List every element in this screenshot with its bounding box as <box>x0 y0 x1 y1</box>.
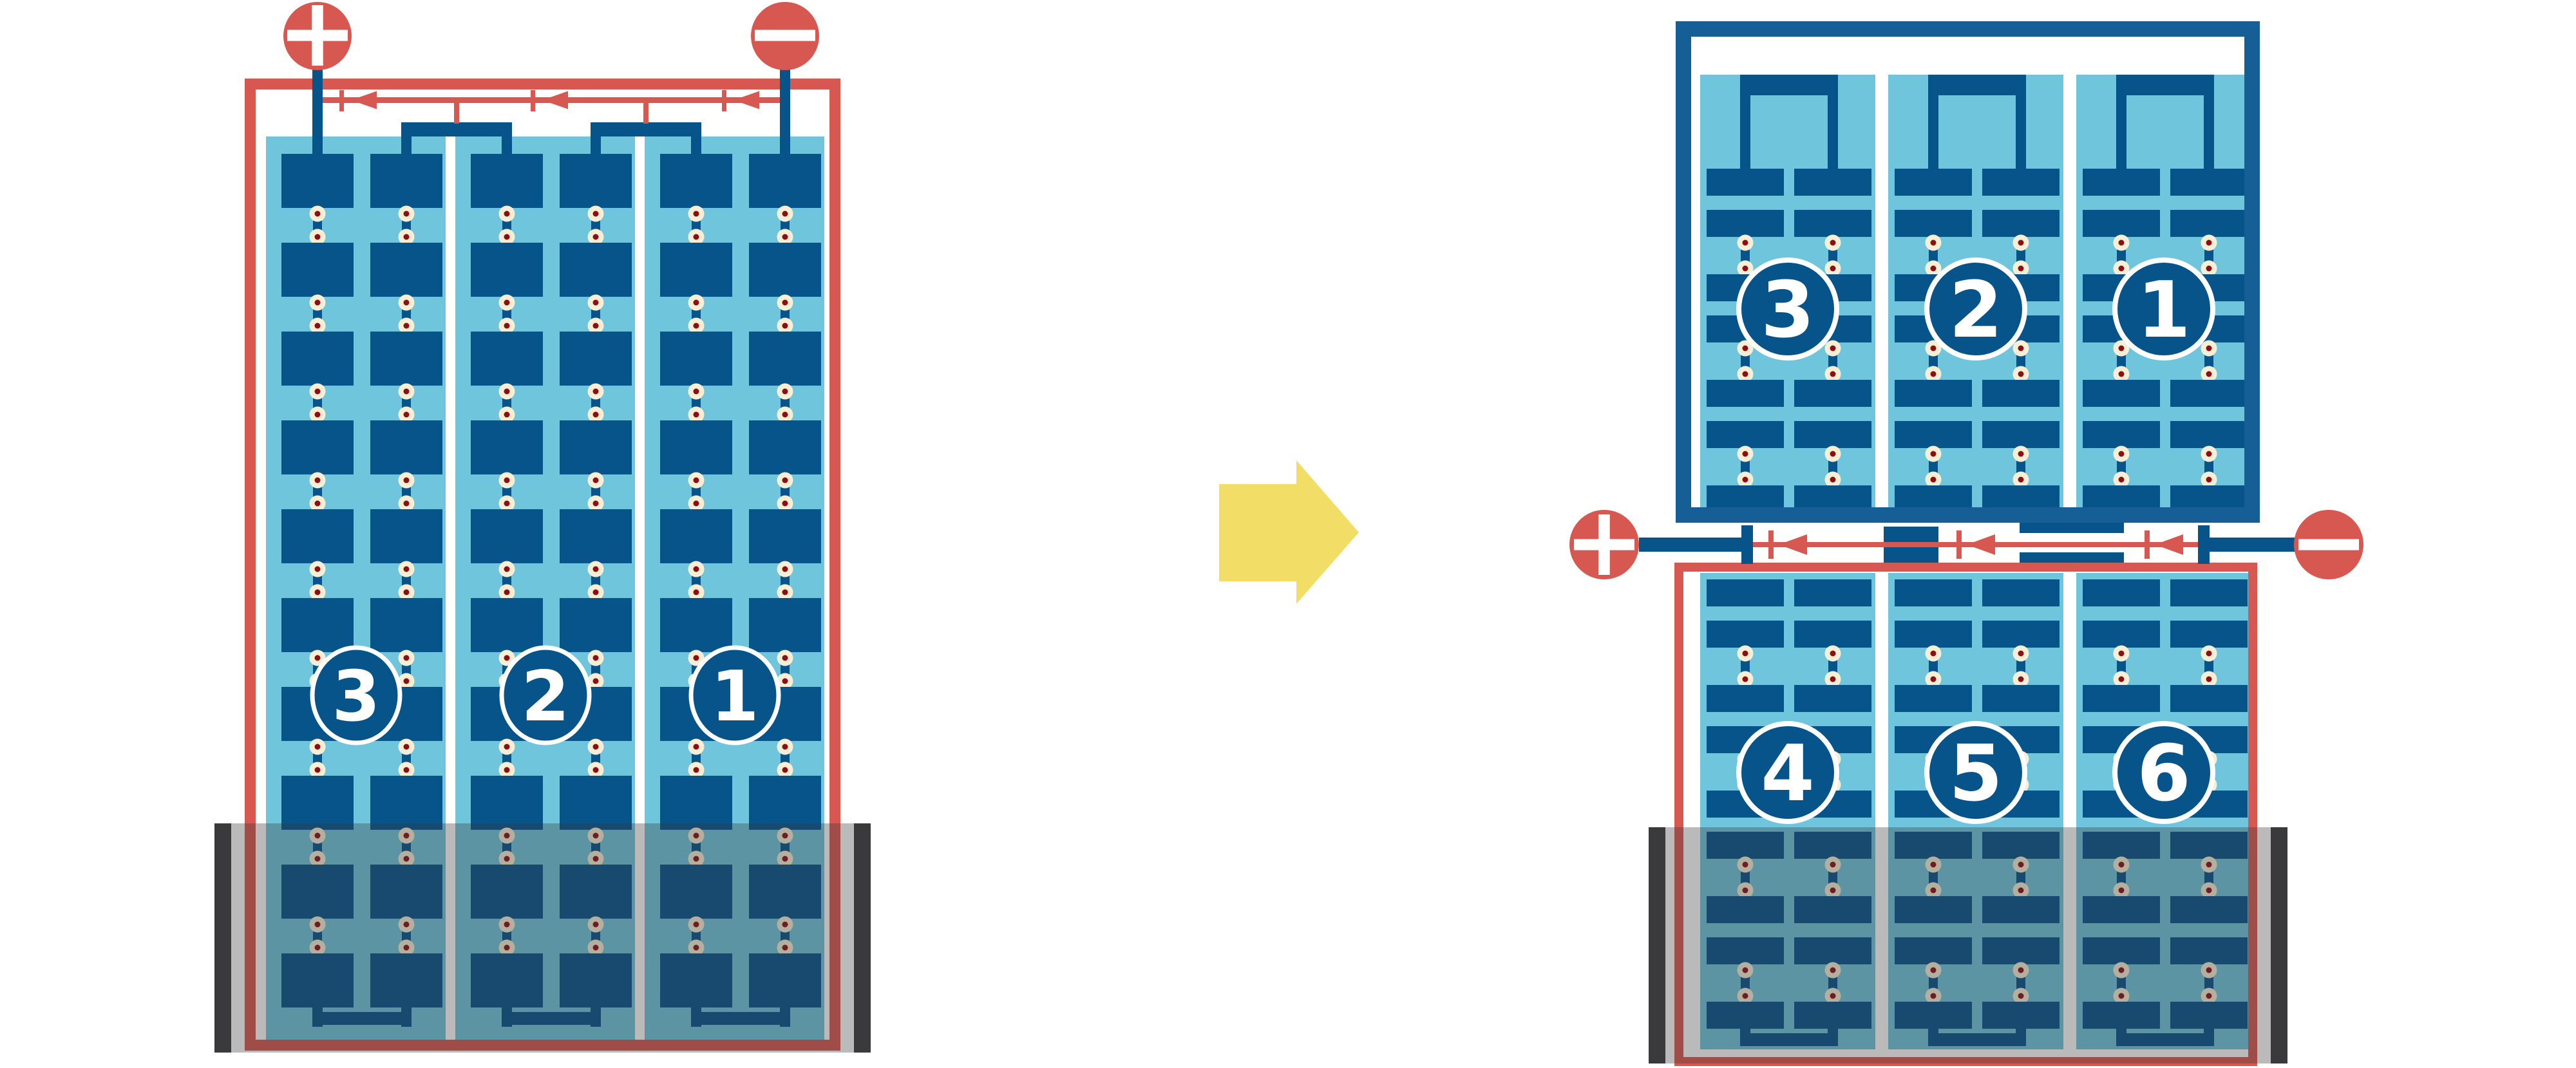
rivet-pin <box>2206 651 2212 657</box>
rivet-pin <box>1830 346 1836 351</box>
rivet-pin <box>2018 677 2024 682</box>
holder-end-bar <box>214 823 231 1053</box>
plate <box>560 776 632 830</box>
plate <box>281 332 354 386</box>
plate <box>1982 380 2060 407</box>
rivet-pin <box>2119 346 2125 351</box>
cell-number: 1 <box>2137 266 2191 355</box>
plate <box>1707 380 1784 407</box>
rivet-pin <box>2206 266 2212 272</box>
cell-number-badge: 6 <box>2115 724 2213 821</box>
plate <box>281 154 354 208</box>
rivet-pin <box>2206 240 2212 246</box>
plate <box>471 154 543 208</box>
plate <box>1707 485 1784 509</box>
rivet-pin <box>2206 371 2212 377</box>
plate <box>2170 685 2248 712</box>
rivet-pin <box>782 567 788 572</box>
rivet-pin <box>782 501 788 507</box>
holder-end-bar <box>854 823 871 1053</box>
rivet-pin <box>593 478 599 483</box>
rivet-pin <box>1931 677 1937 682</box>
top-connector-bar <box>1928 75 2026 95</box>
plate <box>660 420 732 474</box>
current-flow-line <box>323 90 780 124</box>
plate <box>370 243 442 297</box>
arrowhead-left-icon <box>542 91 568 109</box>
rivet-pin <box>1931 371 1937 377</box>
rivet-pin <box>504 389 510 395</box>
plate <box>2170 485 2248 509</box>
minus-terminal-post <box>2210 538 2296 552</box>
rivet-pin <box>694 412 699 418</box>
plus-terminal-post <box>1639 538 1742 552</box>
rivet-pin <box>404 655 410 661</box>
rivet-pin <box>2018 346 2024 351</box>
cell-number-badge: 2 <box>1927 260 2025 358</box>
rivet-pin <box>782 389 788 395</box>
rivet-pin <box>404 501 410 507</box>
rivet-pin <box>694 501 699 507</box>
holder-overlay <box>214 823 871 1053</box>
cell-number-badge: 1 <box>2115 260 2213 358</box>
rivet-pin <box>404 478 410 483</box>
bridge-bar <box>401 122 512 136</box>
plate <box>749 154 821 208</box>
cell-number: 4 <box>1761 729 1815 819</box>
rivet-pin <box>593 501 599 507</box>
rivet-pin <box>404 234 410 240</box>
plate <box>1707 621 1784 648</box>
plate <box>1794 685 1871 712</box>
plate <box>370 598 442 652</box>
rivet-pin <box>1743 477 1748 483</box>
rivet-pin <box>504 478 510 483</box>
rivet-pin <box>2119 651 2125 657</box>
plate <box>1794 210 1871 237</box>
rivet-pin <box>2018 240 2024 246</box>
rivet-pin <box>782 679 788 684</box>
rivet-pin <box>504 211 510 217</box>
top-connector-leg <box>2204 75 2214 169</box>
arrowhead-left-icon <box>1779 534 1807 555</box>
plate <box>471 243 543 297</box>
rivet-pin <box>404 211 410 217</box>
rivet-pin <box>593 679 599 684</box>
plate <box>660 598 732 652</box>
rivet-pin <box>315 234 321 240</box>
bridge-leg <box>691 122 701 154</box>
minus-terminal-label: − <box>2288 486 2369 598</box>
plate <box>1982 421 2060 448</box>
plate <box>1895 169 1972 196</box>
plate <box>1982 169 2060 196</box>
rivet-pin <box>694 567 699 572</box>
cell-number-badge: 2 <box>502 648 589 743</box>
plate <box>1707 421 1784 448</box>
cell-number-badge: 3 <box>1739 260 1837 358</box>
rivet-pin <box>1931 266 1937 272</box>
rivet-pin <box>404 389 410 395</box>
rivet-pin <box>315 478 321 483</box>
plate <box>749 776 821 830</box>
top-connector-leg <box>2116 75 2126 169</box>
rivet-pin <box>1743 266 1748 272</box>
plate <box>1794 579 1871 606</box>
arrowhead-left-icon <box>734 91 759 109</box>
plate <box>660 243 732 297</box>
plate <box>1982 621 2060 648</box>
plus-terminal-label: + <box>1564 486 1645 598</box>
plate <box>471 509 543 563</box>
current-tick <box>1768 530 1774 559</box>
rivet-pin <box>315 211 321 217</box>
cell-number: 1 <box>710 657 759 737</box>
current-flow-line <box>1753 530 2198 559</box>
rivet-pin <box>593 323 599 329</box>
rivet-pin <box>1931 346 1937 351</box>
rivet-pin <box>782 412 788 418</box>
rivet-pin <box>315 323 321 329</box>
rivet-pin <box>593 412 599 418</box>
cell-number: 2 <box>521 657 569 737</box>
rivet-pin <box>504 655 510 661</box>
terminal-tab <box>2198 525 2210 564</box>
rivet-pin <box>2018 371 2024 377</box>
arrowhead-left-icon <box>351 91 377 109</box>
plate <box>370 154 442 208</box>
rivet-pin <box>782 478 788 483</box>
current-tick <box>722 90 726 111</box>
plate <box>2083 579 2160 606</box>
rivet-pin <box>1830 477 1836 483</box>
rivet-pin <box>782 590 788 595</box>
rivet-pin <box>2119 451 2125 457</box>
rivet-pin <box>1830 451 1836 457</box>
rivet-pin <box>593 234 599 240</box>
rivet-pin <box>404 567 410 572</box>
rivet-pin <box>782 300 788 306</box>
plate <box>1794 621 1871 648</box>
plate <box>471 776 543 830</box>
current-tick <box>531 90 535 111</box>
cell-number-badge: 3 <box>312 648 400 743</box>
plate <box>2170 169 2248 196</box>
plate <box>749 509 821 563</box>
left-battery-holder <box>214 823 871 1053</box>
rivet-pin <box>504 590 510 595</box>
plus-terminal: + <box>277 0 358 89</box>
plate <box>1707 579 1784 606</box>
rivet-pin <box>593 590 599 595</box>
current-stub <box>643 103 649 124</box>
rivet-pin <box>694 744 699 750</box>
plate <box>1794 380 1871 407</box>
rivet-pin <box>315 590 321 595</box>
plate <box>370 332 442 386</box>
rivet-pin <box>694 323 699 329</box>
arrowhead-left-icon <box>2155 534 2183 555</box>
rivet-pin <box>315 300 321 306</box>
plate <box>281 598 354 652</box>
plate <box>560 598 632 652</box>
rivet-pin <box>1931 477 1937 483</box>
bridge-bar <box>591 122 701 136</box>
plate <box>1794 485 1871 509</box>
rivet-pin <box>404 679 410 684</box>
rivet-pin <box>1743 651 1748 657</box>
plate <box>1895 421 1972 448</box>
rivet-pin <box>315 655 321 661</box>
top-connector-leg <box>1828 75 1838 169</box>
rivet-pin <box>593 567 599 572</box>
top-connector-leg <box>1740 75 1750 169</box>
top-connector-bar <box>2116 75 2214 95</box>
rivet-pin <box>504 767 510 773</box>
rivet-pin <box>1743 677 1748 682</box>
plate <box>471 420 543 474</box>
plate <box>1707 685 1784 712</box>
rivet-pin <box>404 323 410 329</box>
plate <box>749 420 821 474</box>
rivet-pin <box>694 767 699 773</box>
bridge-leg <box>591 122 601 154</box>
rivet-pin <box>1931 451 1937 457</box>
plate <box>560 154 632 208</box>
bridge-leg <box>502 122 512 154</box>
rivet-pin <box>593 389 599 395</box>
bridge-leg <box>401 122 412 154</box>
current-tick <box>1956 530 1962 559</box>
rivet-pin <box>1743 451 1748 457</box>
rivet-pin <box>504 744 510 750</box>
holder-end-bar <box>1649 827 1665 1063</box>
rivet-pin <box>782 211 788 217</box>
series-link-stub <box>2020 523 2124 533</box>
rivet-pin <box>2018 266 2024 272</box>
plate <box>1707 210 1784 237</box>
current-tick <box>2145 530 2150 559</box>
cell-number-badge: 4 <box>1739 724 1837 821</box>
rivet-pin <box>782 767 788 773</box>
rivet-pin <box>404 767 410 773</box>
top-connector-leg <box>2016 75 2026 169</box>
plate <box>370 509 442 563</box>
plate <box>660 509 732 563</box>
rivet-pin <box>1830 240 1836 246</box>
rivet-pin <box>593 300 599 306</box>
rivet-pin <box>694 590 699 595</box>
plate <box>2170 380 2248 407</box>
rivet-pin <box>2206 451 2212 457</box>
plate <box>1895 621 1972 648</box>
plate <box>2083 421 2160 448</box>
rivet-pin <box>694 234 699 240</box>
rivet-pin <box>694 655 699 661</box>
plate <box>2170 210 2248 237</box>
plate <box>1895 380 1972 407</box>
plate <box>2083 210 2160 237</box>
holder-overlay <box>1649 827 2287 1063</box>
rivet-pin <box>694 478 699 483</box>
rivet-pin <box>1743 240 1748 246</box>
cell-number: 2 <box>1949 266 2003 355</box>
plate <box>2170 621 2248 648</box>
current-tick <box>339 90 344 111</box>
rivet-pin <box>593 211 599 217</box>
plate <box>1895 485 1972 509</box>
rivet-pin <box>782 655 788 661</box>
plate <box>370 776 442 830</box>
rivet-pin <box>315 744 321 750</box>
battery-diagram: + − 3 2 1 <box>0 0 2576 1068</box>
rivet-pin <box>694 211 699 217</box>
cell-number-badge: 5 <box>1927 724 2025 821</box>
rivet-pin <box>782 323 788 329</box>
rivet-pin <box>2206 677 2212 682</box>
cell-number: 3 <box>332 657 380 737</box>
plate <box>281 509 354 563</box>
rivet-pin <box>315 567 321 572</box>
plate <box>560 332 632 386</box>
transform-arrow <box>1219 460 1359 604</box>
rivet-pin <box>1743 371 1748 377</box>
minus-terminal: − <box>2288 486 2369 598</box>
plate <box>1982 579 2060 606</box>
rivet-pin <box>1931 651 1937 657</box>
plate <box>1982 685 2060 712</box>
plate <box>660 776 732 830</box>
terminal-tab <box>1741 525 1753 564</box>
plate <box>2083 485 2160 509</box>
rivet-pin <box>404 300 410 306</box>
rivet-pin <box>315 389 321 395</box>
plate <box>2170 421 2248 448</box>
plate <box>471 332 543 386</box>
rivet-pin <box>1931 240 1937 246</box>
plus-terminal-label: + <box>277 0 358 89</box>
rivet-pin <box>2119 240 2125 246</box>
plate <box>660 154 732 208</box>
top-connector-bar <box>1740 75 1838 95</box>
plate <box>2083 380 2160 407</box>
rivet-pin <box>2119 266 2125 272</box>
series-link-stub <box>2020 552 2124 563</box>
diagram-canvas: + − 3 2 1 <box>0 0 2576 1068</box>
plate <box>749 243 821 297</box>
rivet-pin <box>2018 451 2024 457</box>
rivet-pin <box>504 501 510 507</box>
plate <box>2083 169 2160 196</box>
plate <box>1895 210 1972 237</box>
rivet-pin <box>1830 651 1836 657</box>
rivet-pin <box>2206 477 2212 483</box>
rivet-pin <box>504 234 510 240</box>
plate <box>1982 485 2060 509</box>
rivet-pin <box>1743 346 1748 351</box>
rivet-pin <box>504 412 510 418</box>
rivet-pin <box>2119 371 2125 377</box>
minus-terminal-label: − <box>744 0 826 89</box>
rivet-pin <box>2018 477 2024 483</box>
rivet-pin <box>315 501 321 507</box>
rivet-pin <box>504 567 510 572</box>
arrowhead-left-icon <box>1967 534 1995 555</box>
rivet-pin <box>782 234 788 240</box>
plate <box>660 332 732 386</box>
plate <box>749 332 821 386</box>
plate <box>560 243 632 297</box>
rivet-pin <box>504 323 510 329</box>
plus-terminal: + <box>1564 486 1645 598</box>
plate <box>560 420 632 474</box>
plate <box>749 598 821 652</box>
plate <box>2083 621 2160 648</box>
plate <box>281 420 354 474</box>
rivet-pin <box>694 300 699 306</box>
rivet-pin <box>504 300 510 306</box>
rivet-pin <box>694 389 699 395</box>
plate <box>1794 421 1871 448</box>
cell-number: 5 <box>1949 729 2003 819</box>
holder-end-bar <box>2271 827 2287 1063</box>
plate <box>1794 169 1871 196</box>
plate <box>471 598 543 652</box>
plate <box>560 509 632 563</box>
rivet-pin <box>315 412 321 418</box>
current-stub <box>454 103 459 124</box>
rivet-pin <box>404 744 410 750</box>
plate <box>1982 210 2060 237</box>
rivet-pin <box>404 590 410 595</box>
rivet-pin <box>593 767 599 773</box>
cell-number: 3 <box>1761 266 1815 355</box>
top-connector-leg <box>1928 75 1938 169</box>
plate <box>281 243 354 297</box>
rivet-pin <box>593 655 599 661</box>
plate <box>2083 685 2160 712</box>
plate <box>1895 685 1972 712</box>
rivet-pin <box>1830 371 1836 377</box>
rivet-pin <box>315 767 321 773</box>
plate <box>281 776 354 830</box>
rivet-pin <box>593 744 599 750</box>
rivet-pin <box>2206 346 2212 351</box>
rivet-pin <box>2119 677 2125 682</box>
minus-terminal: − <box>744 0 826 89</box>
plate <box>370 420 442 474</box>
plate <box>1707 169 1784 196</box>
cell-number: 6 <box>2137 729 2191 819</box>
rivet-pin <box>2119 477 2125 483</box>
rivet-pin <box>1830 266 1836 272</box>
plate <box>1895 579 1972 606</box>
rivet-pin <box>1830 677 1836 682</box>
right-battery-holder <box>1649 827 2287 1063</box>
arrow-right-icon <box>1219 460 1359 604</box>
cell-number-badge: 1 <box>691 648 779 743</box>
rivet-pin <box>404 412 410 418</box>
rivet-pin <box>2018 651 2024 657</box>
rivet-pin <box>782 744 788 750</box>
plate <box>2170 579 2248 606</box>
